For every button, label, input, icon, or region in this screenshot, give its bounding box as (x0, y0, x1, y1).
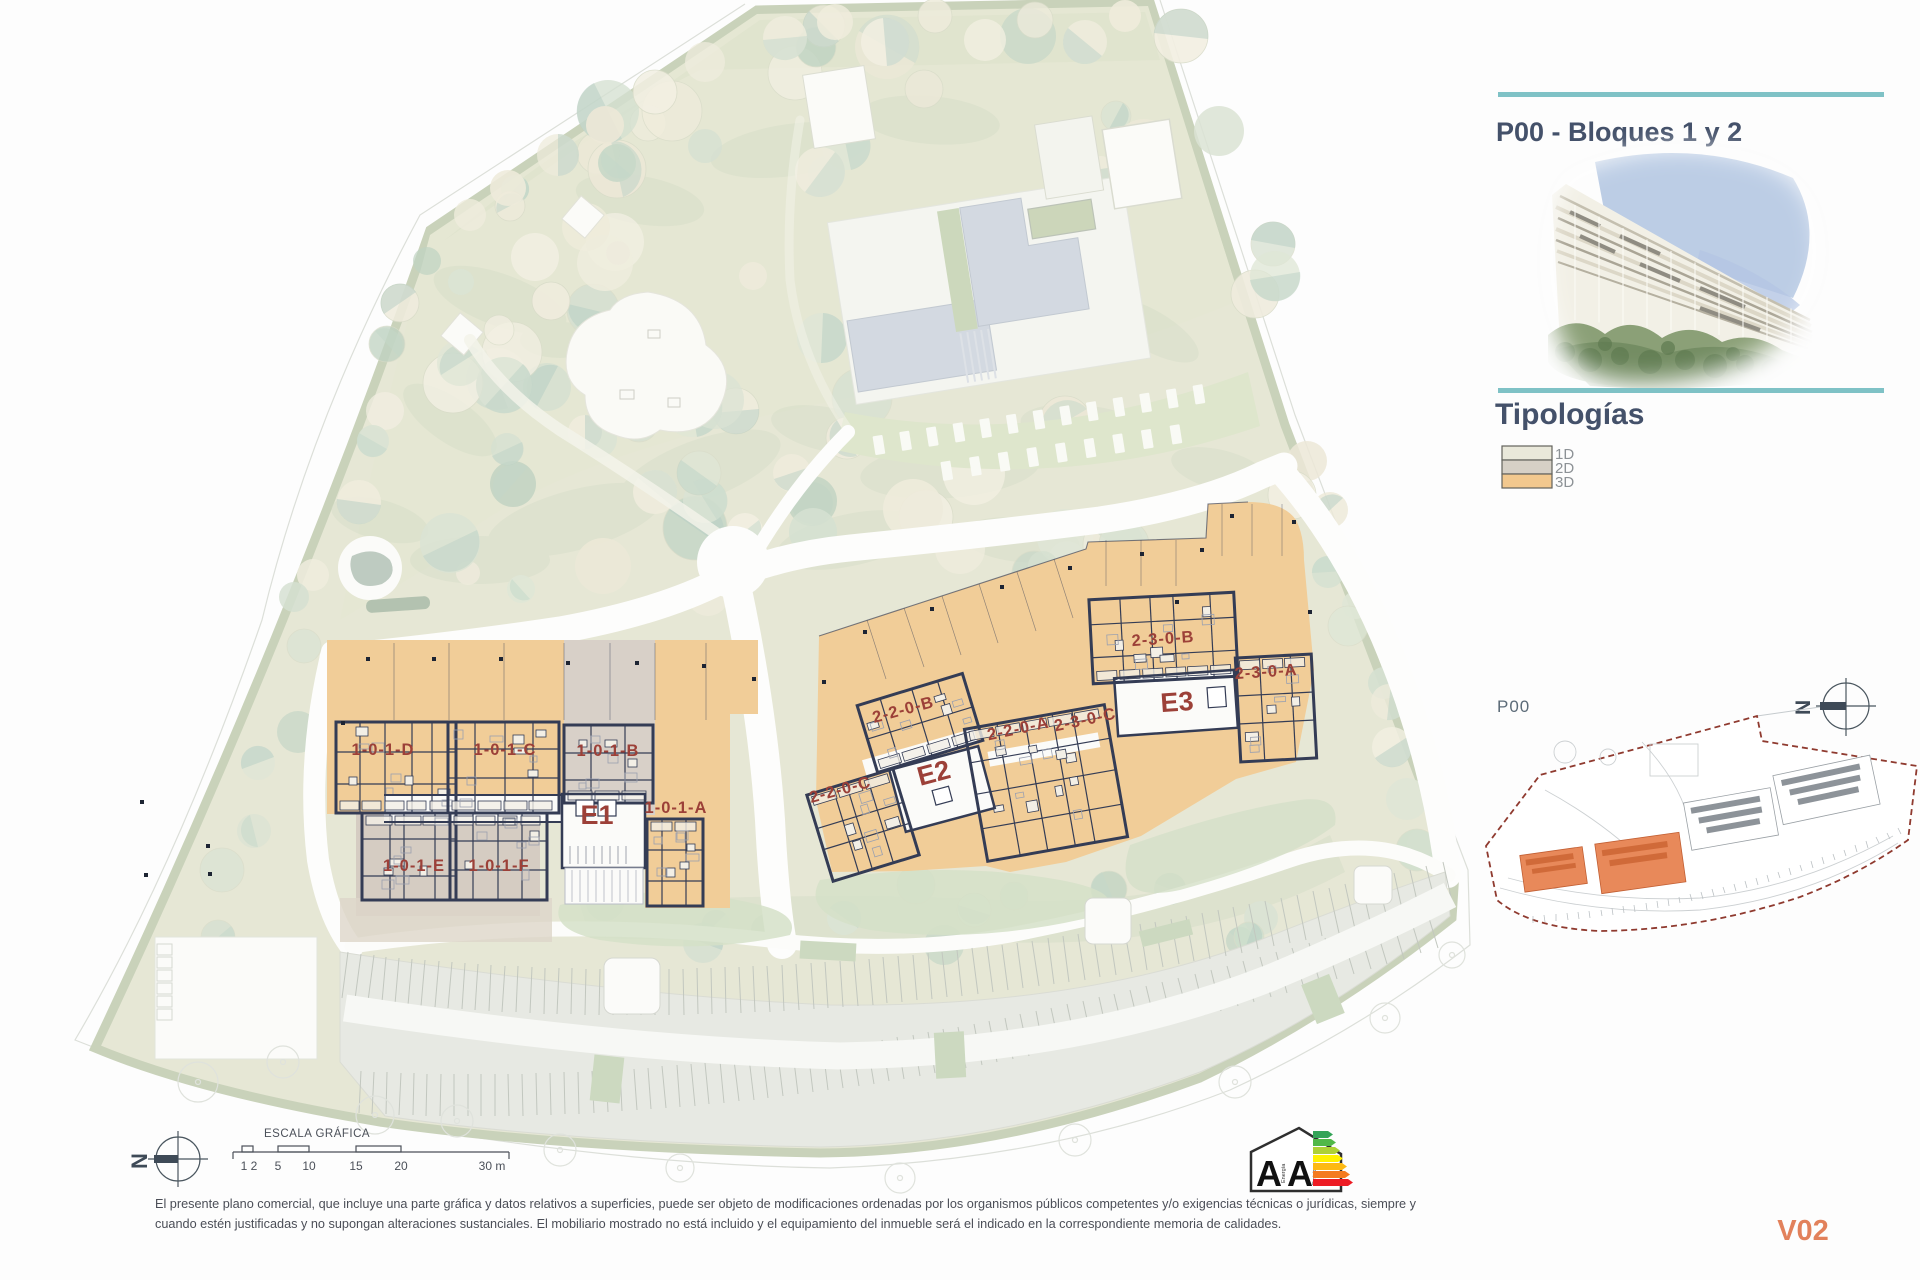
svg-text:10: 10 (302, 1159, 316, 1173)
svg-text:cuando estén justificadas y no: cuando estén justificadas y no supongan … (155, 1217, 1281, 1231)
svg-text:1-0-1-A: 1-0-1-A (645, 799, 708, 817)
svg-text:A: A (1287, 1153, 1313, 1194)
svg-text:El presente plano comercial, q: El presente plano comercial, que incluye… (155, 1197, 1417, 1211)
svg-text:1-0-1-D: 1-0-1-D (352, 741, 415, 759)
svg-text:30 m: 30 m (479, 1159, 506, 1173)
svg-text:E1: E1 (580, 800, 613, 830)
svg-text:ESCALA GRÁFICA: ESCALA GRÁFICA (264, 1127, 370, 1140)
svg-text:2: 2 (251, 1159, 258, 1173)
svg-text:Tipologías: Tipologías (1495, 398, 1644, 431)
svg-text:E3: E3 (1159, 686, 1194, 718)
svg-text:15: 15 (349, 1159, 363, 1173)
svg-text:1-0-1-F: 1-0-1-F (468, 857, 529, 875)
svg-text:3D: 3D (1555, 474, 1574, 491)
svg-text:P00: P00 (1497, 697, 1530, 716)
svg-text:N: N (1792, 700, 1815, 715)
svg-text:Energía: Energía (1281, 1163, 1287, 1183)
svg-text:1-0-1-C: 1-0-1-C (474, 741, 537, 759)
svg-text:1-0-1-E: 1-0-1-E (383, 857, 445, 875)
svg-text:5: 5 (275, 1159, 282, 1173)
svg-text:1-0-1-B: 1-0-1-B (577, 742, 640, 760)
svg-text:N: N (127, 1153, 152, 1169)
svg-text:20: 20 (394, 1159, 408, 1173)
svg-text:V02: V02 (1777, 1215, 1829, 1247)
svg-text:1: 1 (241, 1159, 248, 1173)
svg-text:A: A (1256, 1153, 1282, 1194)
